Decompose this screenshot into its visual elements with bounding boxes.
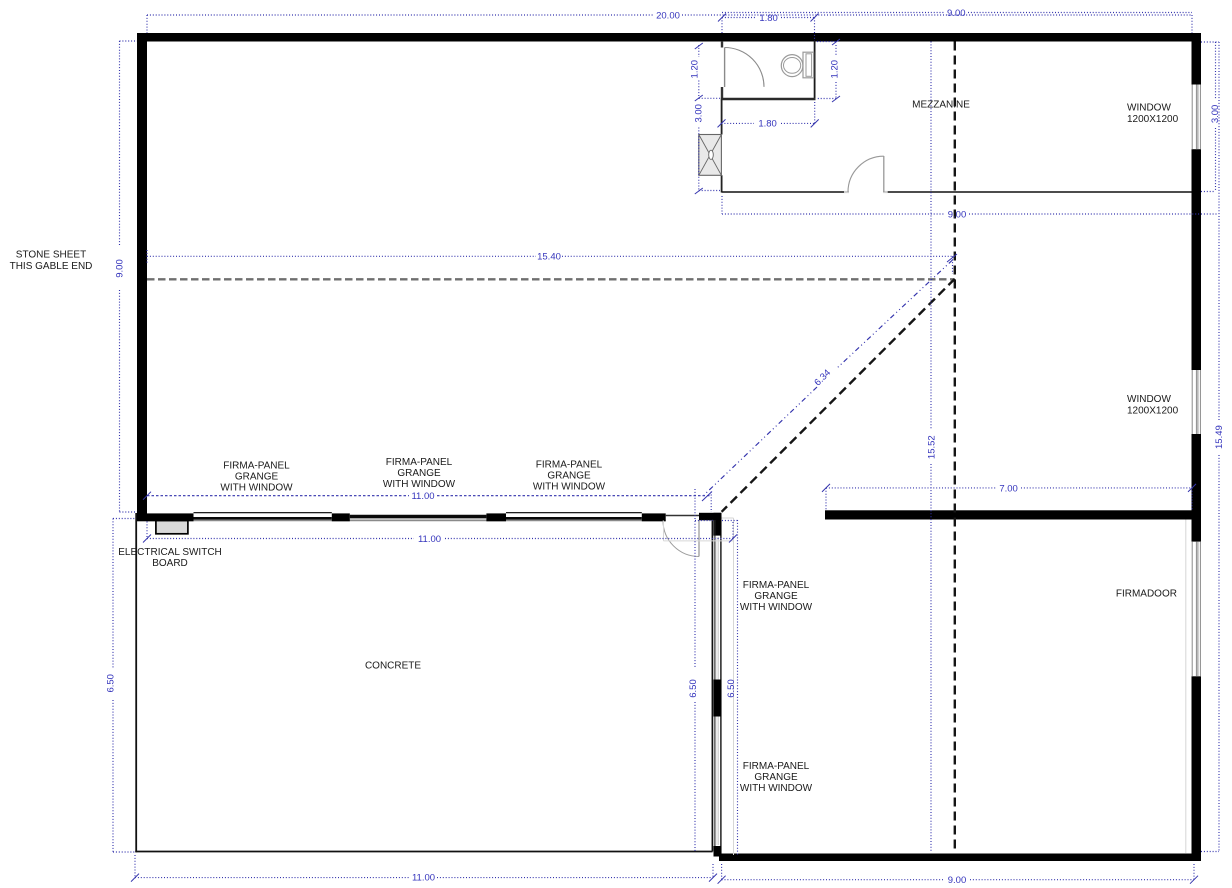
svg-text:15.40: 15.40 — [537, 251, 561, 262]
svg-text:6.50: 6.50 — [106, 674, 117, 693]
svg-text:11.00: 11.00 — [412, 872, 435, 883]
svg-text:GRANGE: GRANGE — [754, 772, 798, 783]
svg-text:GRANGE: GRANGE — [235, 472, 279, 483]
svg-text:GRANGE: GRANGE — [547, 471, 591, 482]
svg-text:WITH WINDOW: WITH WINDOW — [383, 479, 456, 490]
svg-text:WITH WINDOW: WITH WINDOW — [740, 783, 813, 794]
svg-text:STONE SHEET: STONE SHEET — [16, 250, 86, 261]
svg-text:WINDOW: WINDOW — [1127, 394, 1171, 405]
svg-text:FIRMADOOR: FIRMADOOR — [1116, 588, 1177, 599]
svg-text:FIRMA-PANEL: FIRMA-PANEL — [536, 460, 603, 471]
svg-text:BOARD: BOARD — [152, 558, 188, 569]
svg-text:CONCRETE: CONCRETE — [365, 661, 421, 672]
svg-text:11.00: 11.00 — [411, 491, 434, 502]
svg-text:FIRMA-PANEL: FIRMA-PANEL — [386, 457, 453, 468]
svg-text:1.80: 1.80 — [758, 119, 777, 130]
svg-text:THIS GABLE END: THIS GABLE END — [10, 261, 93, 272]
svg-text:GRANGE: GRANGE — [754, 591, 798, 602]
svg-text:WITH WINDOW: WITH WINDOW — [533, 482, 606, 493]
svg-text:FIRMA-PANEL: FIRMA-PANEL — [743, 761, 810, 772]
svg-text:WITH WINDOW: WITH WINDOW — [220, 483, 293, 494]
svg-text:7.00: 7.00 — [999, 484, 1018, 495]
svg-text:15.52: 15.52 — [926, 435, 937, 459]
svg-text:WITH WINDOW: WITH WINDOW — [740, 602, 813, 613]
svg-text:6.50: 6.50 — [726, 679, 737, 698]
svg-text:1200X1200: 1200X1200 — [1127, 114, 1179, 125]
svg-text:FIRMA-PANEL: FIRMA-PANEL — [743, 580, 810, 591]
svg-text:9.00: 9.00 — [115, 259, 126, 278]
svg-text:6.50: 6.50 — [688, 679, 699, 698]
svg-text:20.00: 20.00 — [656, 11, 680, 22]
svg-text:11.00: 11.00 — [418, 534, 441, 545]
svg-text:3.00: 3.00 — [694, 104, 705, 123]
svg-text:3.00: 3.00 — [1210, 105, 1221, 124]
svg-text:15.49: 15.49 — [1214, 425, 1225, 449]
svg-text:ELECTRICAL SWITCH: ELECTRICAL SWITCH — [118, 547, 222, 558]
svg-text:GRANGE: GRANGE — [397, 468, 441, 479]
svg-text:1.20: 1.20 — [690, 60, 701, 79]
svg-text:1.80: 1.80 — [759, 13, 778, 24]
svg-text:9.00: 9.00 — [948, 210, 967, 221]
svg-text:MEZZANINE: MEZZANINE — [912, 100, 970, 111]
svg-text:9.00: 9.00 — [948, 875, 967, 886]
svg-text:FIRMA-PANEL: FIRMA-PANEL — [223, 461, 290, 472]
svg-text:1.20: 1.20 — [829, 60, 840, 79]
svg-text:1200X1200: 1200X1200 — [1127, 406, 1179, 417]
svg-text:WINDOW: WINDOW — [1127, 103, 1171, 114]
svg-text:9.00: 9.00 — [947, 8, 966, 19]
